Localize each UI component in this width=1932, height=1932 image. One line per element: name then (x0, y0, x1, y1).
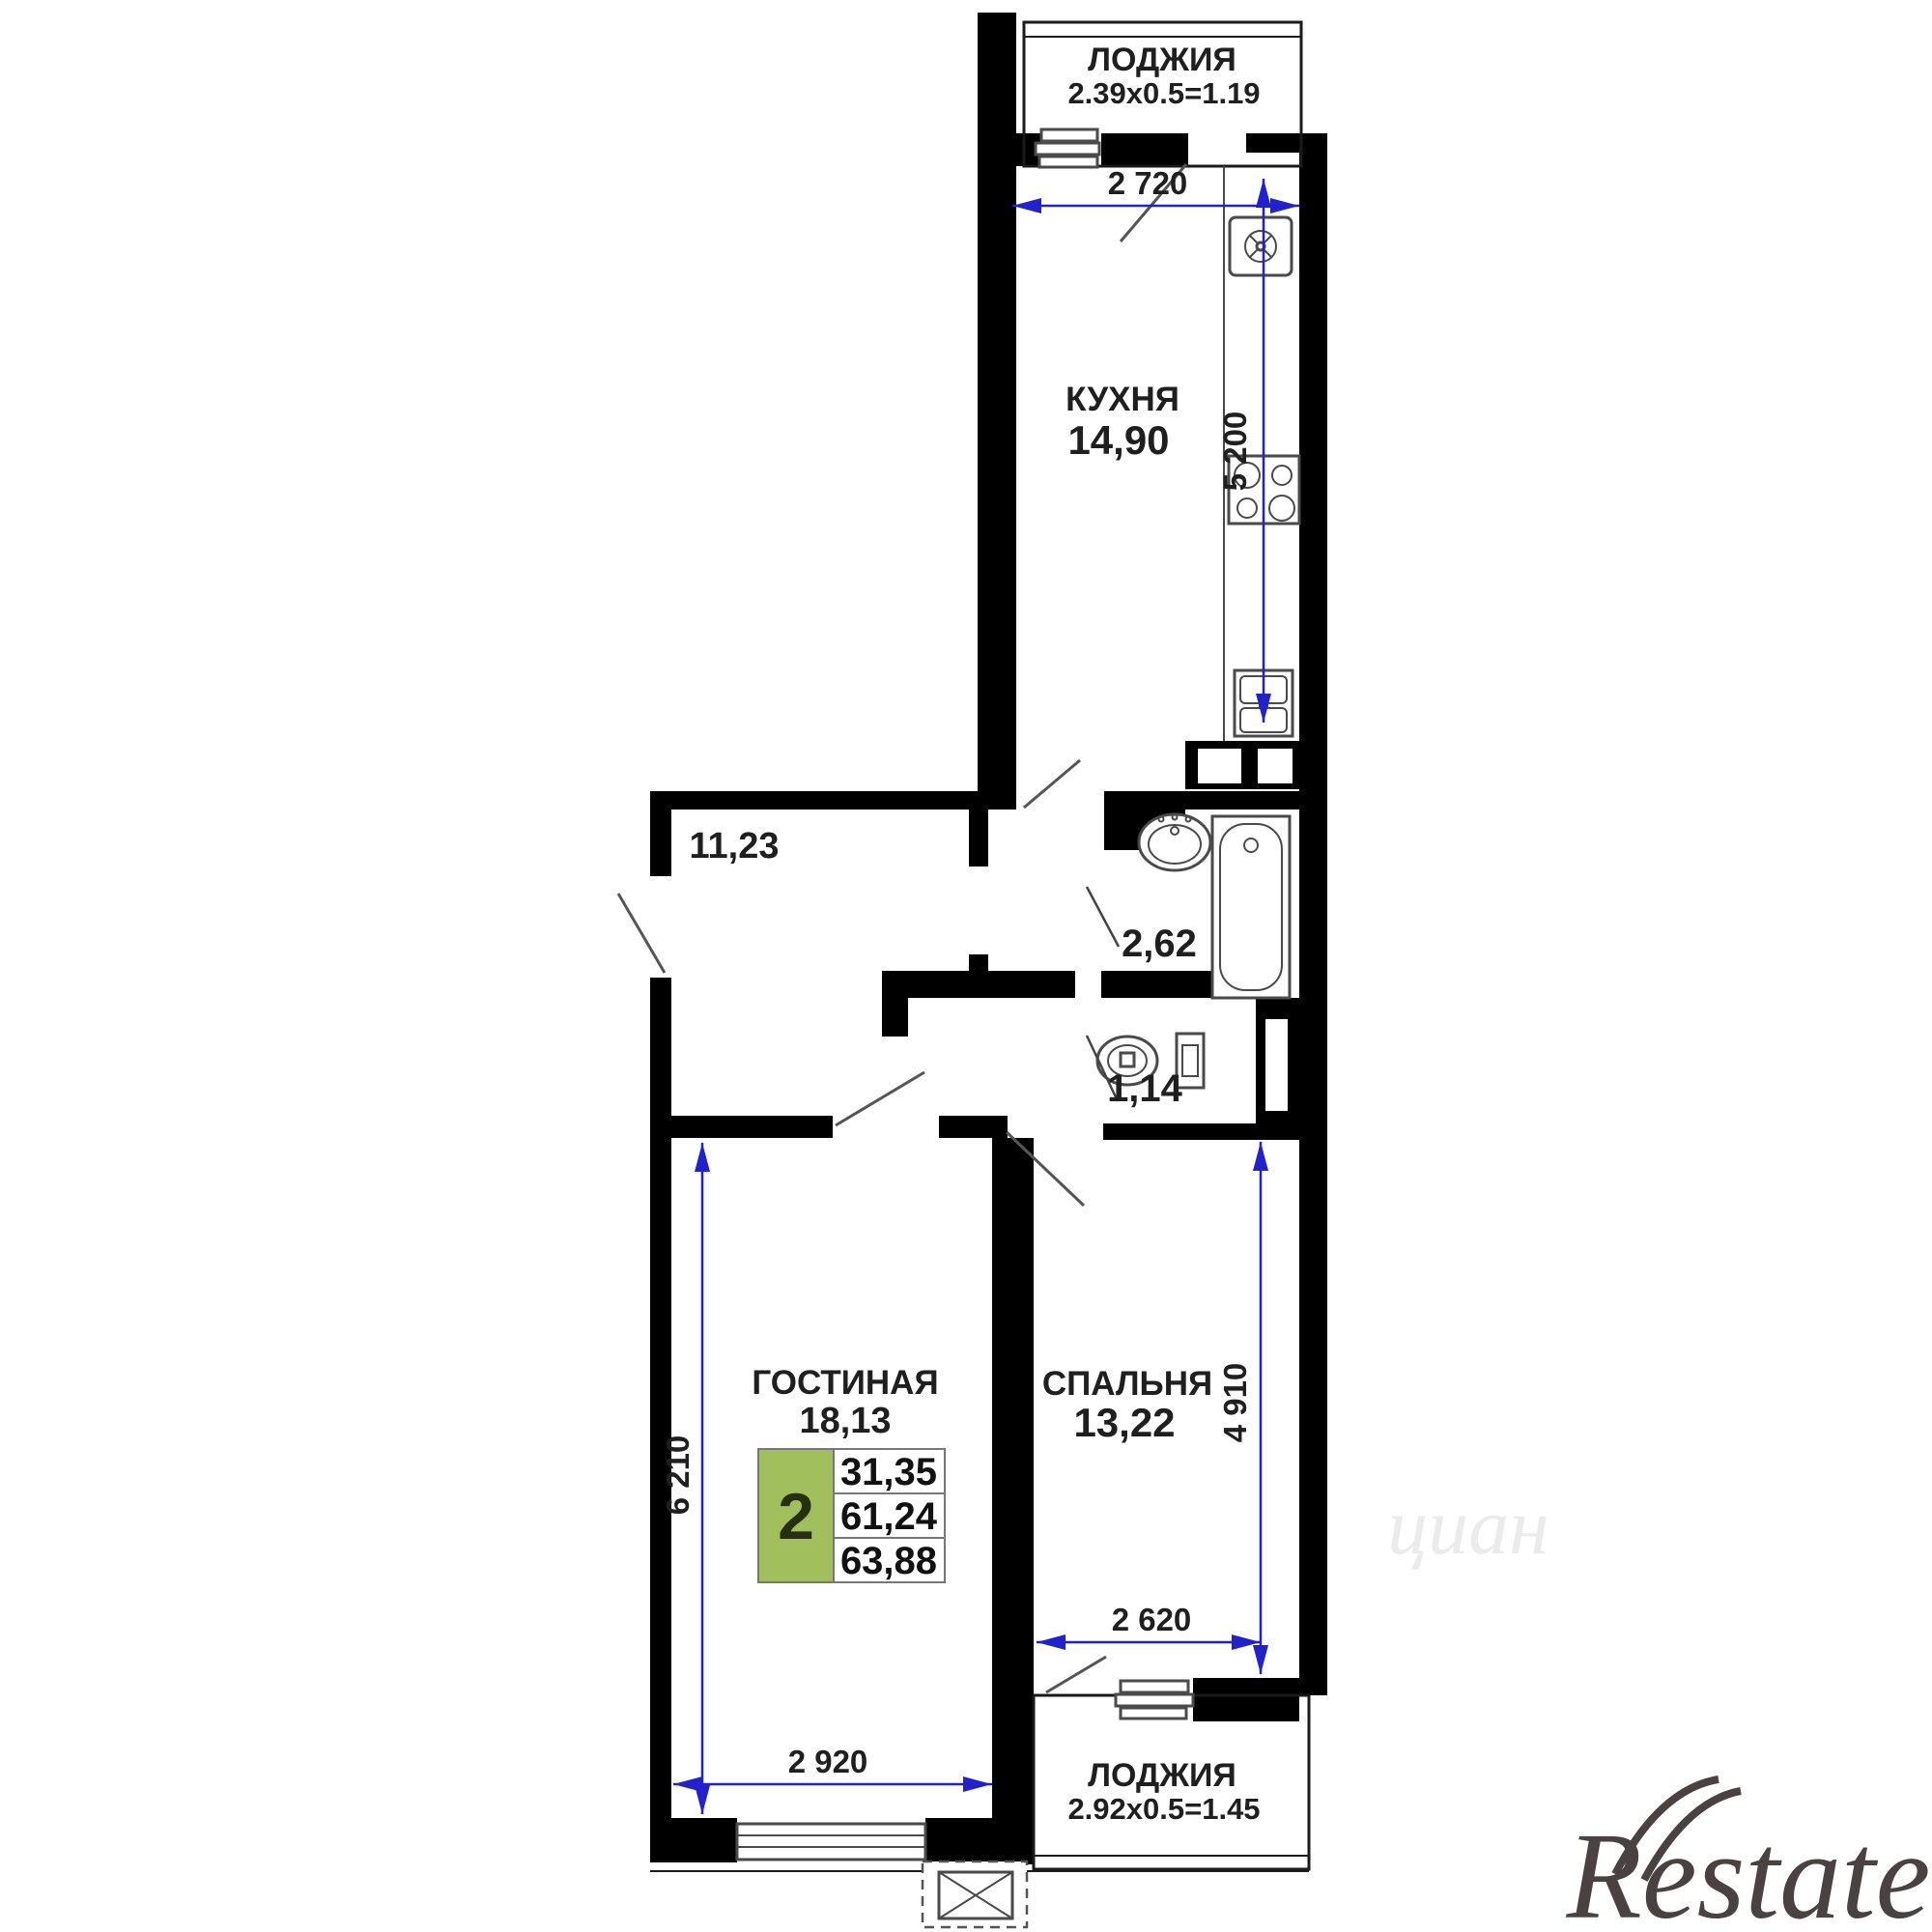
washbasin-icon (1139, 814, 1210, 870)
dim-kitchen-depth-label: 5 200 (1217, 412, 1253, 492)
bedroom-area: 13,22 (1073, 1400, 1175, 1445)
window-loggia-kitchen (1036, 129, 1099, 167)
dim-living-depth-label: 6 210 (660, 1435, 696, 1516)
dimension-bedroom-width: 2 620 (1037, 1602, 1261, 1650)
dimension-living-width: 2 920 (673, 1744, 992, 1792)
kitchen-area: 14,90 (1067, 417, 1169, 463)
loggia-top-dims: 2.39x0.5=1.19 (1067, 76, 1260, 110)
loggia-bottom-name: ЛОДЖИЯ (1088, 1757, 1236, 1794)
dimension-bedroom-depth: 4 910 (1217, 1142, 1268, 1674)
restate-watermark: Restate (1566, 1779, 1931, 1932)
window-living-room (737, 1824, 925, 1860)
apartment-info-box: 2 31,35 61,24 63,88 (758, 1449, 945, 1582)
wc-area: 1,14 (1107, 1067, 1183, 1110)
floor-plan: 2 720 5 200 6 210 2 920 4 910 2 620 (0, 0, 1932, 1932)
faint-watermark: циан (1387, 1482, 1549, 1572)
dim-living-width-label: 2 920 (788, 1744, 868, 1779)
window-bedroom-loggia (1116, 1681, 1193, 1719)
restate-watermark-text: Restate (1566, 1807, 1931, 1932)
bedroom-name: СПАЛЬНЯ (1042, 1365, 1212, 1403)
kitchen-name: КУХНЯ (1065, 381, 1179, 418)
loggia-top-name: ЛОДЖИЯ (1088, 42, 1236, 78)
living-name: ГОСТИНАЯ (752, 1364, 938, 1402)
bathroom-area: 2,62 (1122, 923, 1197, 965)
living-area: 18,13 (799, 1401, 891, 1441)
dim-kitchen-width-label: 2 720 (1108, 165, 1188, 201)
hall-area: 11,23 (690, 826, 780, 867)
shaft-icon (923, 1861, 1027, 1927)
dim-bedroom-depth-label: 4 910 (1217, 1363, 1253, 1443)
info-total-area: 63,88 (840, 1540, 937, 1582)
kitchen-appliance-icon (1230, 217, 1292, 275)
loggia-bottom-dims: 2.92x0.5=1.45 (1067, 1792, 1260, 1826)
info-rooms-count: 2 (778, 1480, 814, 1553)
info-area: 61,24 (840, 1495, 938, 1538)
info-living-area: 31,35 (840, 1451, 937, 1493)
floor-plan-drawing: 2 720 5 200 6 210 2 920 4 910 2 620 (0, 0, 1932, 1932)
bathtub-icon (1212, 816, 1290, 998)
dim-bedroom-width-label: 2 620 (1112, 1602, 1192, 1637)
